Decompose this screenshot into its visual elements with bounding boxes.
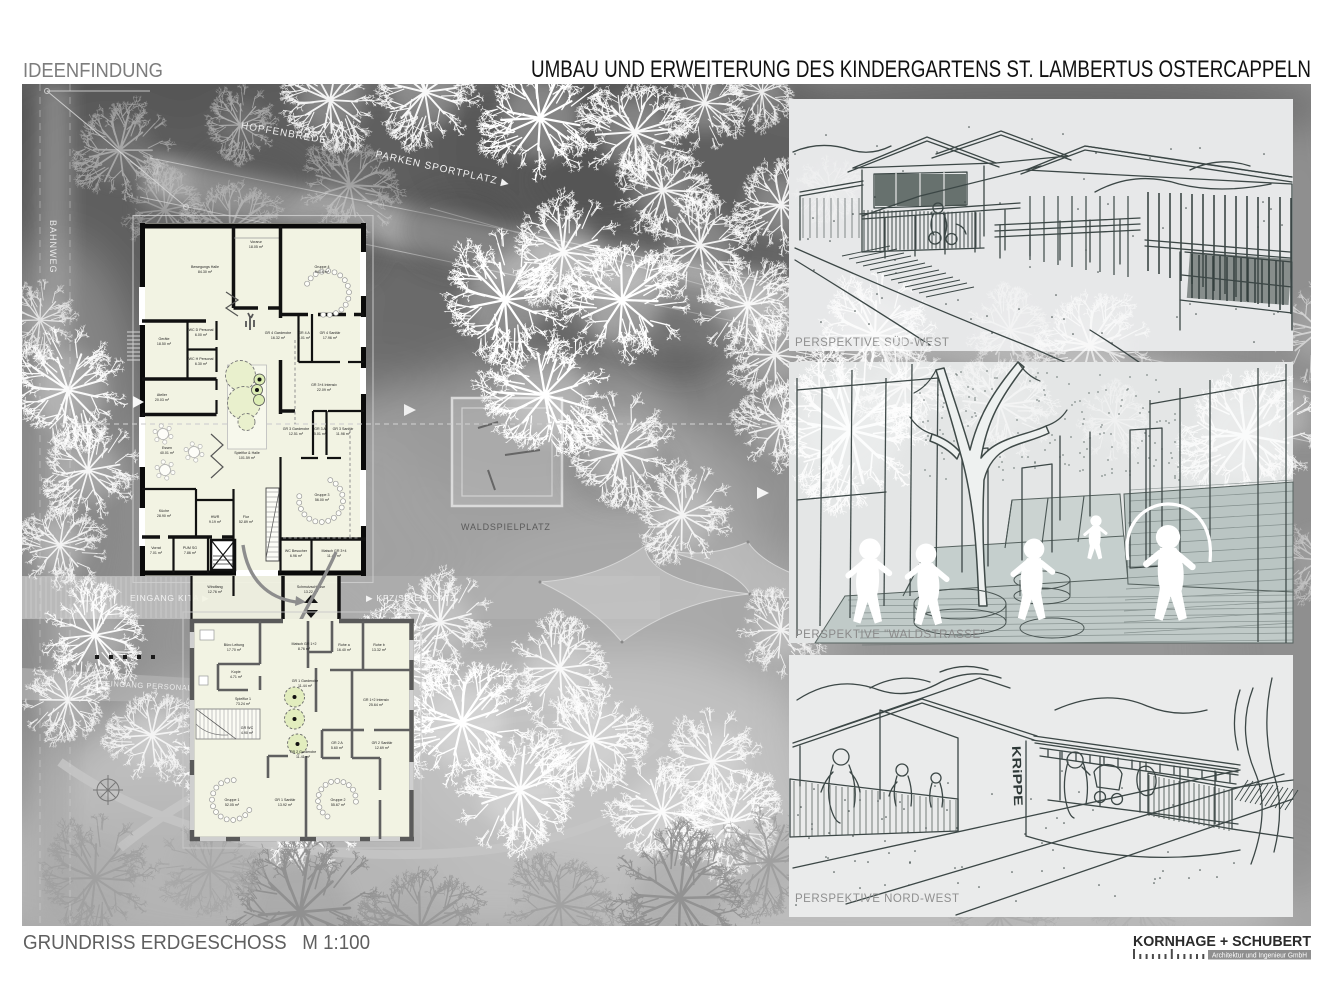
svg-text:56.00 m²: 56.00 m² xyxy=(315,498,330,502)
svg-text:12.69 m²: 12.69 m² xyxy=(375,746,390,750)
svg-text:BAHNWEG: BAHNWEG xyxy=(48,220,58,274)
svg-text:11.98 m²: 11.98 m² xyxy=(336,432,351,436)
svg-text:Küche: Küche xyxy=(159,509,169,513)
svg-text:HWR: HWR xyxy=(211,515,220,519)
svg-text:Matsch GR 1+2: Matsch GR 1+2 xyxy=(291,642,316,646)
svg-text:20.03 m²: 20.03 m² xyxy=(155,398,170,402)
svg-text:Ruhe b: Ruhe b xyxy=(373,643,385,647)
svg-text:GR 3+4 Intensiv: GR 3+4 Intensiv xyxy=(311,383,337,387)
svg-text:5.01 m²: 5.01 m² xyxy=(314,432,327,436)
svg-text:8.76 m²: 8.76 m² xyxy=(298,647,311,651)
svg-text:GR 2 Sanitär: GR 2 Sanitär xyxy=(372,741,394,745)
svg-text:Architektur und Ingenieur GmbH: Architektur und Ingenieur GmbH xyxy=(1212,952,1307,959)
svg-text:WALDSPIELPLATZ: WALDSPIELPLATZ xyxy=(461,522,551,532)
svg-text:25.64 m²: 25.64 m² xyxy=(369,703,384,707)
svg-text:Bewegungs Halle: Bewegungs Halle xyxy=(191,265,219,269)
svg-text:18.05 m²: 18.05 m² xyxy=(249,245,264,249)
svg-text:GR 2 A: GR 2 A xyxy=(331,741,343,745)
svg-text:GR 3 A: GR 3 A xyxy=(314,427,326,431)
svg-text:Windfang: Windfang xyxy=(207,585,222,589)
svg-text:13.92 m²: 13.92 m² xyxy=(278,803,293,807)
svg-text:84.30 m²: 84.30 m² xyxy=(198,270,213,274)
svg-text:GR 3 Garderobe: GR 3 Garderobe xyxy=(283,427,310,431)
svg-text:Spielflur & Halle: Spielflur & Halle xyxy=(234,451,260,455)
svg-text:IDEENFINDUNG: IDEENFINDUNG xyxy=(23,60,163,82)
svg-text:6.30 m²: 6.30 m² xyxy=(195,362,208,366)
svg-text:Vorarur: Vorarur xyxy=(250,240,263,244)
svg-text:Gruppe 1: Gruppe 1 xyxy=(225,798,240,802)
svg-text:WC H Personal: WC H Personal xyxy=(189,357,214,361)
svg-text:55.67 m²: 55.67 m² xyxy=(331,803,346,807)
svg-text:GR 1+2 Intensiv: GR 1+2 Intensiv xyxy=(363,698,389,702)
svg-text:11.44 m²: 11.44 m² xyxy=(298,684,313,688)
svg-text:54.16 m²: 54.16 m² xyxy=(315,270,330,274)
svg-text:PERSPEKTIVE "WALDSTRASSE": PERSPEKTIVE "WALDSTRASSE" xyxy=(795,629,985,641)
svg-text:52.05 m²: 52.05 m² xyxy=(225,803,240,807)
svg-text:Gruppe 2: Gruppe 2 xyxy=(331,798,346,802)
svg-text:6.00 m²: 6.00 m² xyxy=(195,333,208,337)
svg-text:GR 2 Garderobe: GR 2 Garderobe xyxy=(290,750,317,754)
svg-text:Spielflur 1: Spielflur 1 xyxy=(235,697,251,701)
svg-text:WC D Personal: WC D Personal xyxy=(189,328,214,332)
svg-text:12.76 m²: 12.76 m² xyxy=(208,590,223,594)
svg-text:Gruppe 3: Gruppe 3 xyxy=(315,493,330,497)
svg-text:6.96 m²: 6.96 m² xyxy=(290,554,303,558)
svg-text:PUM SG: PUM SG xyxy=(183,546,197,550)
svg-text:5.01 m²: 5.01 m² xyxy=(298,336,311,340)
svg-text:17.70 m²: 17.70 m² xyxy=(227,648,242,652)
svg-text:7.86 m²: 7.86 m² xyxy=(184,551,197,555)
svg-text:GR 4 Garderobe: GR 4 Garderobe xyxy=(265,331,292,335)
svg-text:PERSPEKTIVE NORD-WEST: PERSPEKTIVE NORD-WEST xyxy=(795,893,960,905)
svg-text:101.59 m²: 101.59 m² xyxy=(239,456,256,460)
svg-text:4.71 m²: 4.71 m² xyxy=(230,675,243,679)
svg-text:Vorrat: Vorrat xyxy=(151,546,161,550)
svg-text:22.09 m²: 22.09 m² xyxy=(317,388,332,392)
svg-text:Geräte: Geräte xyxy=(159,337,170,341)
svg-text:18.50 m²: 18.50 m² xyxy=(157,342,172,346)
svg-text:GR 1 Sanitär: GR 1 Sanitär xyxy=(275,798,297,802)
svg-text:16.32 m²: 16.32 m² xyxy=(271,336,286,340)
svg-text:Essen: Essen xyxy=(162,446,172,450)
svg-text:Gruppe 4: Gruppe 4 xyxy=(315,265,330,269)
svg-text:12.51 m²: 12.51 m² xyxy=(289,432,304,436)
svg-text:UMBAU UND ERWEITERUNG DES KIND: UMBAU UND ERWEITERUNG DES KINDERGARTENS … xyxy=(531,56,1311,83)
svg-text:Atelier: Atelier xyxy=(157,393,168,397)
svg-text:16.40 m²: 16.40 m² xyxy=(337,648,352,652)
svg-text:28.90 m²: 28.90 m² xyxy=(157,514,172,518)
svg-text:Flur: Flur xyxy=(243,515,250,519)
svg-text:13.32 m²: 13.32 m² xyxy=(372,648,387,652)
svg-text:GR 1 Garderobe: GR 1 Garderobe xyxy=(292,679,319,683)
svg-text:GR 4 Sanitär: GR 4 Sanitär xyxy=(320,331,342,335)
svg-text:KORNHAGE + SCHUBERT: KORNHAGE + SCHUBERT xyxy=(1133,934,1311,950)
svg-text:GR WC: GR WC xyxy=(241,726,254,730)
svg-text:4.90 m²: 4.90 m² xyxy=(241,731,254,735)
svg-text:GRUNDRISS ERDGESCHOSS M 1:10: GRUNDRISS ERDGESCHOSS M 1:100 xyxy=(23,932,370,954)
svg-text:GR 4 A: GR 4 A xyxy=(298,331,310,335)
svg-text:Kopie: Kopie xyxy=(231,670,240,674)
svg-text:73.24 m²: 73.24 m² xyxy=(236,702,251,706)
svg-text:17.96 m²: 17.96 m² xyxy=(323,336,338,340)
svg-text:GR 3 Sanitär: GR 3 Sanitär xyxy=(333,427,355,431)
svg-text:9.19 m²: 9.19 m² xyxy=(209,520,222,524)
svg-text:11.41 m²: 11.41 m² xyxy=(296,755,311,759)
svg-text:Büro Leitung: Büro Leitung xyxy=(224,643,244,647)
svg-text:5.60 m²: 5.60 m² xyxy=(331,746,344,750)
svg-text:52.89 m²: 52.89 m² xyxy=(239,520,254,524)
svg-text:7.01 m²: 7.01 m² xyxy=(150,551,163,555)
svg-text:40.01 m²: 40.01 m² xyxy=(160,451,175,455)
svg-text:KRiPPE: KRiPPE xyxy=(1009,746,1025,806)
svg-text:Ruhe a: Ruhe a xyxy=(338,643,350,647)
svg-text:WC Besucher: WC Besucher xyxy=(285,549,308,553)
